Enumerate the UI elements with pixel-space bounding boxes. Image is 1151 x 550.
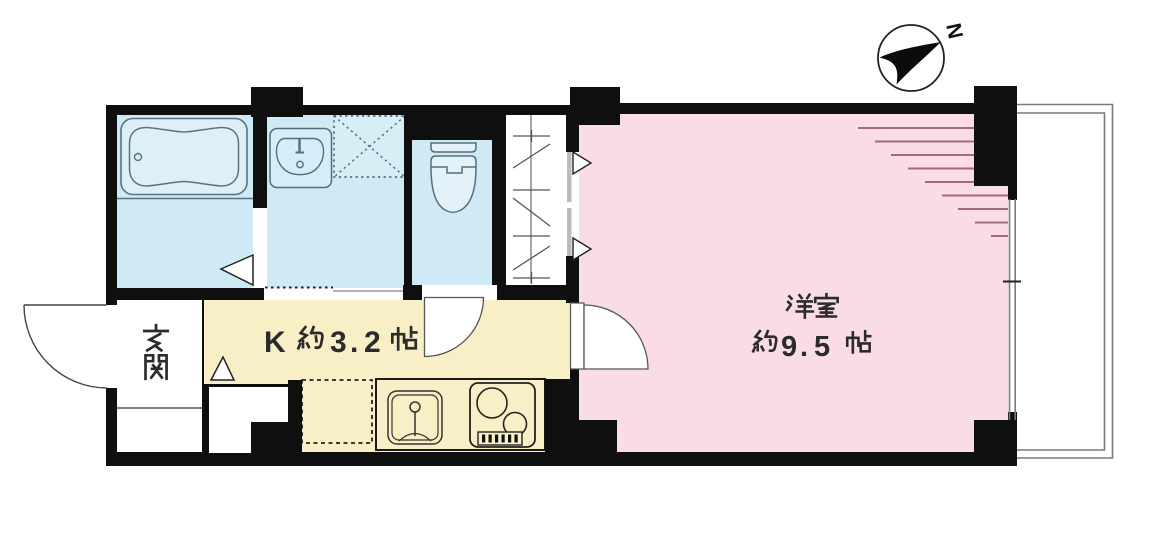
svg-text:5: 5 bbox=[814, 331, 830, 363]
svg-text:2: 2 bbox=[364, 326, 381, 359]
svg-text:.: . bbox=[350, 326, 358, 359]
svg-text:K: K bbox=[264, 326, 286, 359]
svg-text:3: 3 bbox=[330, 326, 347, 359]
svg-text:N: N bbox=[941, 21, 967, 41]
svg-text:.: . bbox=[800, 331, 808, 363]
svg-text:9: 9 bbox=[781, 331, 797, 363]
